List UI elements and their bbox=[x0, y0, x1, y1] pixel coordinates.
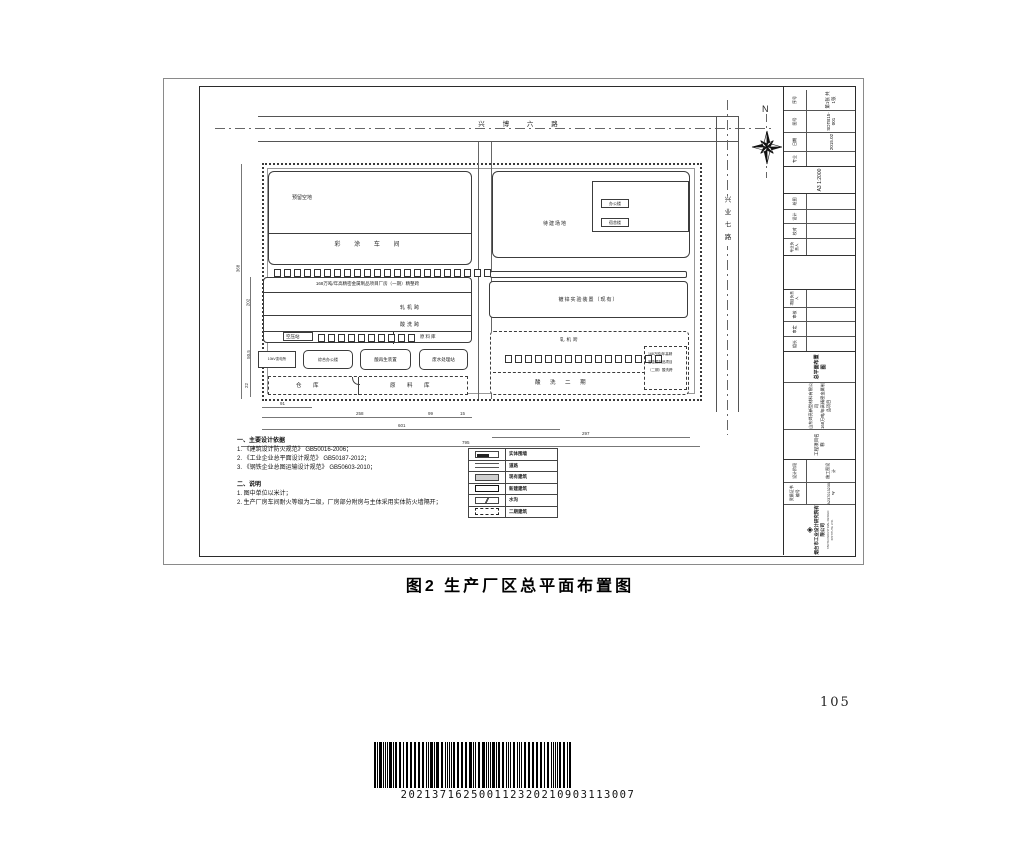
design-notes: 一、主要设计依据 1. 《建筑设计防火规范》 GB50016-2006； 2. … bbox=[237, 437, 462, 508]
title-block: ◈ 烟台市工业设计研究院有限公司 YANTAI INDUSTRIAL DESIG… bbox=[783, 86, 855, 555]
sig-label: 组长 bbox=[784, 337, 807, 351]
legend-row: 实体围墙 bbox=[469, 449, 557, 461]
fields-block: 专业 日期2015.02 图号SDTB15-001 序号第1张 共1张 bbox=[784, 90, 855, 166]
figure-caption: 图2 生产厂区总平面布置图 bbox=[330, 572, 710, 596]
field-value: 2015.02 bbox=[807, 133, 855, 151]
legend-row: 二期建筑 bbox=[469, 507, 557, 518]
legend-phase2-symbol bbox=[475, 508, 499, 515]
sig-label: 绘图 bbox=[784, 194, 807, 209]
phase2-note-line3: （二期）酸洗跨 bbox=[648, 368, 673, 373]
note-line: 2. 生产厂房车间耐火等级为二级，厂房部分附房与主体采用实体防火墙隔开； bbox=[237, 499, 462, 508]
substation-label: 10kV变电所 bbox=[258, 351, 296, 368]
acid-regen-label: 酸再生装置 bbox=[360, 349, 411, 370]
reserved-land-label: 预留空地 bbox=[292, 194, 312, 201]
stage-value: 施工图设计 bbox=[807, 460, 855, 482]
right-road-edge bbox=[738, 116, 739, 412]
cert-label: 资质证书编号 bbox=[784, 483, 807, 504]
dimension-value: 15 bbox=[460, 411, 465, 416]
legend-row: 道路 bbox=[469, 461, 557, 473]
top-road-edge bbox=[258, 141, 738, 142]
sig-label: 专业负责人 bbox=[784, 239, 807, 255]
galv-test-label: 镀锌实验装置（现有） bbox=[489, 281, 688, 318]
dimension-line bbox=[262, 429, 560, 430]
equipment-symbols bbox=[505, 355, 562, 363]
stage-label: 设计阶段 bbox=[784, 460, 807, 482]
project-name: 168万吨/年高精密金属制品项目 bbox=[820, 383, 832, 430]
legend-row: 新建建筑 bbox=[469, 484, 557, 496]
note-line: 2. 《工业企业总平面设计规范》 GB50187-2012； bbox=[237, 455, 462, 464]
company-name: 烟台市工业设计研究院有限公司 bbox=[814, 505, 826, 555]
legend-label: 实体围墙 bbox=[506, 449, 557, 460]
dimension-value: 258 bbox=[356, 411, 364, 416]
warehouse-label: 仓 库 bbox=[296, 381, 324, 389]
note-line: 1. 《建筑设计防火规范》 GB50016-2006； bbox=[237, 446, 462, 455]
dimension-value: 202 bbox=[245, 299, 250, 307]
dimension-line bbox=[241, 164, 242, 399]
dorm-label: 宿舍楼 bbox=[601, 218, 629, 227]
legend-label: 新建建筑 bbox=[506, 484, 557, 495]
legend-ditch-symbol bbox=[475, 497, 499, 504]
notes-heading: 二、说明 bbox=[237, 481, 462, 490]
dimension-line bbox=[250, 277, 251, 397]
note-line: 1. 图中单位以米计； bbox=[237, 490, 462, 499]
field-label: 专业 bbox=[784, 152, 807, 166]
legend-row: 水沟 bbox=[469, 495, 557, 507]
legend-label: 道路 bbox=[506, 461, 557, 472]
north-label: N bbox=[762, 104, 769, 114]
dimension-line bbox=[262, 417, 472, 418]
drawing-title: 总平面布置图 bbox=[784, 352, 855, 382]
office-complex-label: 综合办公楼 bbox=[303, 350, 353, 369]
project-name-label: 工程项目名称 bbox=[784, 429, 855, 459]
wastewater-label: 废水处理站 bbox=[419, 349, 468, 370]
air-station-label: 空压站 bbox=[286, 334, 300, 340]
pickling-phase2-label: 酸 洗 二 期 bbox=[535, 378, 590, 386]
dimension-value: 91 bbox=[280, 401, 285, 406]
right-road-centerline bbox=[727, 100, 728, 435]
top-road-centerline bbox=[215, 128, 775, 129]
dimension-line bbox=[492, 437, 690, 438]
sig-label: 审定 bbox=[784, 322, 807, 336]
legend-label: 现有建筑 bbox=[506, 472, 557, 483]
crane-rail-symbols bbox=[274, 269, 491, 277]
dimension-value: 297 bbox=[582, 431, 590, 436]
phase2-note-line1: 168万吨/年高精 bbox=[648, 352, 672, 357]
top-road-edge bbox=[258, 116, 738, 117]
raw-warehouse-label: 原 料 库 bbox=[390, 381, 435, 389]
sig-label: 设计 bbox=[784, 210, 807, 224]
legend-label: 水沟 bbox=[506, 495, 557, 506]
pickling-bay-label: 酸洗跨 bbox=[400, 321, 421, 328]
scale-cell: A3 1:2000 bbox=[784, 166, 855, 193]
future-site-label: 待建场地 bbox=[543, 220, 567, 227]
divider-line bbox=[269, 233, 472, 234]
mill-bay-label: 轧机跨 bbox=[400, 304, 421, 311]
dimension-value: 99 bbox=[428, 411, 433, 416]
barcode bbox=[374, 742, 662, 788]
blank-cell bbox=[784, 255, 855, 289]
phase2-note-line2: 密金属制品项目 bbox=[648, 360, 673, 365]
note-line: 3. 《钢铁企业总图运输设计规范》 GB50603-2010； bbox=[237, 464, 462, 473]
cert-value: A237013230-sy bbox=[807, 483, 855, 504]
building-paint-shop-block bbox=[268, 171, 472, 265]
document-page: 兴 博 六 路 兴业七路 N 预留空地 彩 涂 车 间 168万吨/年 bbox=[0, 0, 1024, 847]
legend-wall-symbol bbox=[475, 451, 499, 458]
paint-shop-label: 彩 涂 车 间 bbox=[268, 239, 472, 248]
field-value: 第1张 共1张 bbox=[807, 90, 855, 110]
raw-store-label: 原料库 bbox=[420, 334, 437, 340]
company-logo-icon: ◈ bbox=[806, 527, 814, 533]
legend-new-symbol bbox=[475, 485, 499, 492]
field-label: 图号 bbox=[784, 111, 807, 132]
right-road-edge bbox=[716, 116, 717, 412]
compass-rose-icon bbox=[748, 128, 786, 168]
dimension-value: 601 bbox=[398, 423, 406, 428]
signature-block-2: 组长 审定 审核 项目负责人 bbox=[784, 289, 855, 351]
building-strip bbox=[490, 271, 687, 278]
sig-label: 审核 bbox=[784, 308, 807, 322]
sig-label: 校对 bbox=[784, 225, 807, 239]
equipment-symbols bbox=[318, 334, 415, 342]
main-plant-label: 168万吨/年高精密金属制品项目厂房（一期）精整跨 bbox=[263, 281, 472, 287]
project-block: 工程项目名称 山东烨亮新型材料有限公司 168万吨/年高精密金属制品项目 总平面… bbox=[784, 351, 855, 459]
office-label: 办公楼 bbox=[601, 199, 629, 208]
legend-row: 现有建筑 bbox=[469, 472, 557, 484]
notes-heading: 一、主要设计依据 bbox=[237, 437, 462, 446]
dimension-value: 22 bbox=[244, 383, 249, 388]
field-value bbox=[807, 152, 855, 166]
signature-block-1: 专业负责人 校对 设计 绘图 bbox=[784, 193, 855, 255]
field-label: 日期 bbox=[784, 133, 807, 151]
mill-bay2-label: 轧机跨 bbox=[560, 337, 580, 343]
dimension-value: 368 bbox=[235, 265, 240, 273]
field-label: 序号 bbox=[784, 90, 807, 110]
company-name-en: YANTAI INDUSTRIAL DESIGN INSTITUTE LTD. bbox=[826, 505, 834, 555]
page-number: 105 bbox=[820, 695, 851, 710]
project-owner: 山东烨亮新型材料有限公司 bbox=[808, 383, 820, 430]
right-road-label: 兴业七路 bbox=[721, 196, 731, 246]
dimension-value: 795 bbox=[462, 440, 470, 445]
field-value: SDTB15-001 bbox=[807, 111, 855, 132]
dimension-line bbox=[262, 407, 312, 408]
barcode-digits: 202137162500112320210903113007 bbox=[360, 789, 676, 801]
equipment-symbols bbox=[555, 355, 612, 363]
top-road-label: 兴 博 六 路 bbox=[462, 118, 582, 128]
sig-label: 项目负责人 bbox=[784, 290, 807, 307]
company-block: ◈ 烟台市工业设计研究院有限公司 YANTAI INDUSTRIAL DESIG… bbox=[784, 459, 855, 555]
legend: 实体围墙 道路 现有建筑 新建建筑 水沟 二期建筑 bbox=[468, 448, 558, 518]
legend-road-symbol bbox=[475, 463, 499, 468]
legend-existing-symbol bbox=[475, 474, 499, 481]
legend-label: 二期建筑 bbox=[506, 507, 557, 518]
dimension-value: 50.5 bbox=[246, 350, 251, 359]
